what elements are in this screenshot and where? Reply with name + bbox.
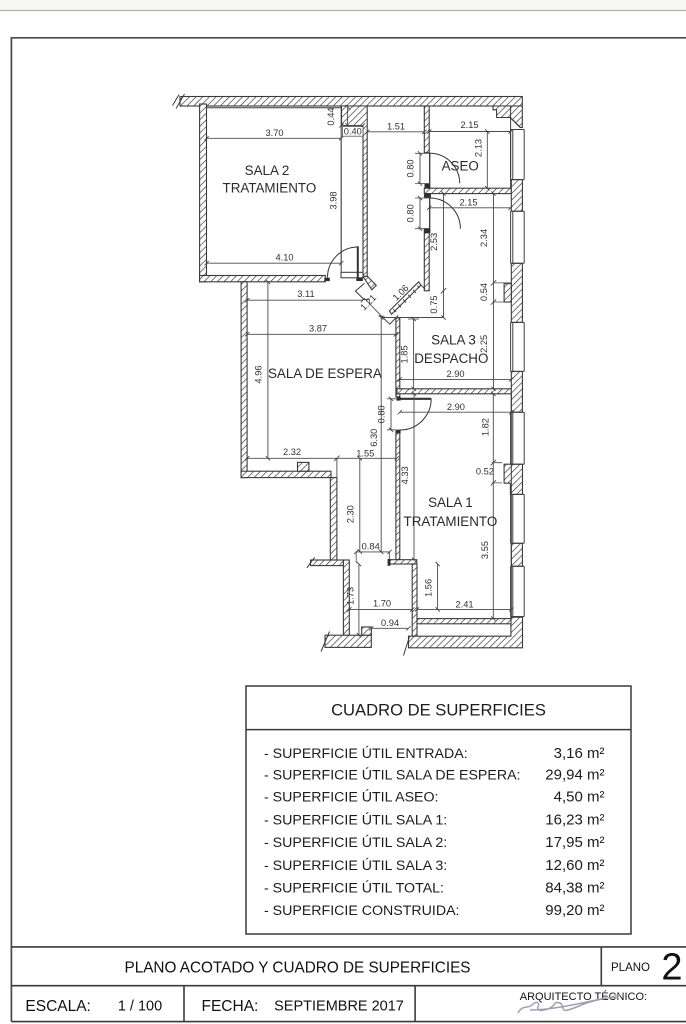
- svg-text:0.52: 0.52: [476, 466, 494, 476]
- svg-text:ESCALA:: ESCALA:: [25, 998, 90, 1015]
- svg-text:1.55: 1.55: [356, 448, 374, 458]
- svg-text:3.55: 3.55: [480, 541, 490, 559]
- svg-text:29,94 m²: 29,94 m²: [545, 766, 604, 783]
- svg-text:SALA 1: SALA 1: [428, 495, 473, 510]
- svg-text:84,38 m²: 84,38 m²: [545, 880, 604, 897]
- svg-text:0.44: 0.44: [326, 107, 336, 125]
- svg-text:3,16 m²: 3,16 m²: [554, 745, 605, 762]
- svg-text:2.90: 2.90: [446, 369, 464, 379]
- svg-text:SALA 2: SALA 2: [245, 163, 290, 178]
- svg-text:99,20 m²: 99,20 m²: [545, 902, 604, 919]
- svg-text:- SUPERFICIE ÚTIL TOTAL:: - SUPERFICIE ÚTIL TOTAL:: [264, 880, 444, 897]
- svg-text:4.10: 4.10: [275, 253, 293, 263]
- svg-text:0.80: 0.80: [405, 204, 415, 222]
- svg-text:0.80: 0.80: [405, 159, 415, 177]
- svg-text:1.70: 1.70: [373, 598, 391, 608]
- svg-text:0.40: 0.40: [344, 126, 362, 136]
- svg-text:2.13: 2.13: [473, 139, 483, 157]
- svg-text:2.15: 2.15: [460, 120, 478, 130]
- svg-text:- SUPERFICIE ÚTIL ENTRADA:: - SUPERFICIE ÚTIL ENTRADA:: [264, 745, 468, 762]
- svg-text:0.94: 0.94: [381, 618, 399, 628]
- svg-text:- SUPERFICIE CONSTRUIDA:: - SUPERFICIE CONSTRUIDA:: [264, 903, 460, 919]
- svg-text:3.70: 3.70: [265, 128, 283, 138]
- svg-text:PLANO: PLANO: [611, 962, 650, 974]
- svg-text:3.11: 3.11: [297, 289, 314, 299]
- svg-text:6.30: 6.30: [369, 429, 379, 447]
- svg-text:- SUPERFICIE ÚTIL SALA 1:: - SUPERFICIE ÚTIL SALA 1:: [264, 811, 447, 828]
- svg-text:- SUPERFICIE ÚTIL SALA DE ESPE: - SUPERFICIE ÚTIL SALA DE ESPERA:: [264, 766, 521, 783]
- svg-text:2.32: 2.32: [283, 447, 301, 457]
- svg-text:0.54: 0.54: [479, 283, 489, 301]
- svg-text:1.51: 1.51: [387, 121, 405, 131]
- svg-text:2.53: 2.53: [429, 233, 439, 251]
- svg-text:1.56: 1.56: [423, 579, 433, 597]
- svg-text:2.41: 2.41: [455, 599, 473, 609]
- svg-text:TRATAMIENTO: TRATAMIENTO: [223, 180, 317, 195]
- svg-text:2.90: 2.90: [447, 402, 465, 412]
- svg-text:CUADRO DE SUPERFICIES: CUADRO DE SUPERFICIES: [331, 701, 546, 720]
- svg-text:4,50 m²: 4,50 m²: [554, 789, 605, 806]
- svg-text:2.30: 2.30: [345, 505, 355, 523]
- svg-text:1.82: 1.82: [481, 418, 491, 436]
- svg-text:SEPTIEMBRE 2017: SEPTIEMBRE 2017: [274, 998, 404, 1014]
- svg-text:2.15: 2.15: [459, 198, 477, 208]
- svg-text:2.34: 2.34: [479, 229, 489, 247]
- svg-text:3.98: 3.98: [329, 191, 339, 209]
- svg-text:0.75: 0.75: [429, 295, 439, 313]
- svg-text:2: 2: [661, 947, 682, 989]
- svg-text:17,95 m²: 17,95 m²: [545, 834, 604, 851]
- svg-text:- SUPERFICIE ÚTIL SALA 3:: - SUPERFICIE ÚTIL SALA 3:: [264, 857, 447, 874]
- svg-text:DESPACHO: DESPACHO: [414, 351, 488, 366]
- svg-text:SALA 3: SALA 3: [431, 333, 476, 348]
- svg-text:3.87: 3.87: [309, 323, 327, 333]
- svg-text:ASEO: ASEO: [442, 159, 479, 174]
- svg-text:1 / 100: 1 / 100: [118, 998, 162, 1014]
- svg-text:- SUPERFICIE ÚTIL SALA 2:: - SUPERFICIE ÚTIL SALA 2:: [264, 834, 447, 851]
- svg-text:- SUPERFICIE ÚTIL ASEO:: - SUPERFICIE ÚTIL ASEO:: [264, 789, 439, 806]
- svg-text:4.33: 4.33: [400, 466, 410, 484]
- svg-text:1.85: 1.85: [400, 345, 410, 363]
- svg-text:PLANO ACOTADO Y CUADRO DE SUPE: PLANO ACOTADO Y CUADRO DE SUPERFICIES: [125, 960, 471, 977]
- svg-text:16,23 m²: 16,23 m²: [545, 811, 604, 828]
- svg-text:SALA DE ESPERA: SALA DE ESPERA: [268, 366, 382, 381]
- svg-text:0.80: 0.80: [377, 405, 387, 423]
- svg-text:4.96: 4.96: [254, 365, 264, 383]
- svg-text:ARQUITECTO TÉCNICO:: ARQUITECTO TÉCNICO:: [520, 990, 647, 1003]
- svg-text:12,60 m²: 12,60 m²: [545, 857, 604, 874]
- svg-text:TRATAMIENTO: TRATAMIENTO: [404, 514, 498, 529]
- svg-text:FECHA:: FECHA:: [202, 998, 259, 1015]
- svg-text:0.84: 0.84: [362, 542, 380, 552]
- svg-text:1.73: 1.73: [345, 587, 355, 605]
